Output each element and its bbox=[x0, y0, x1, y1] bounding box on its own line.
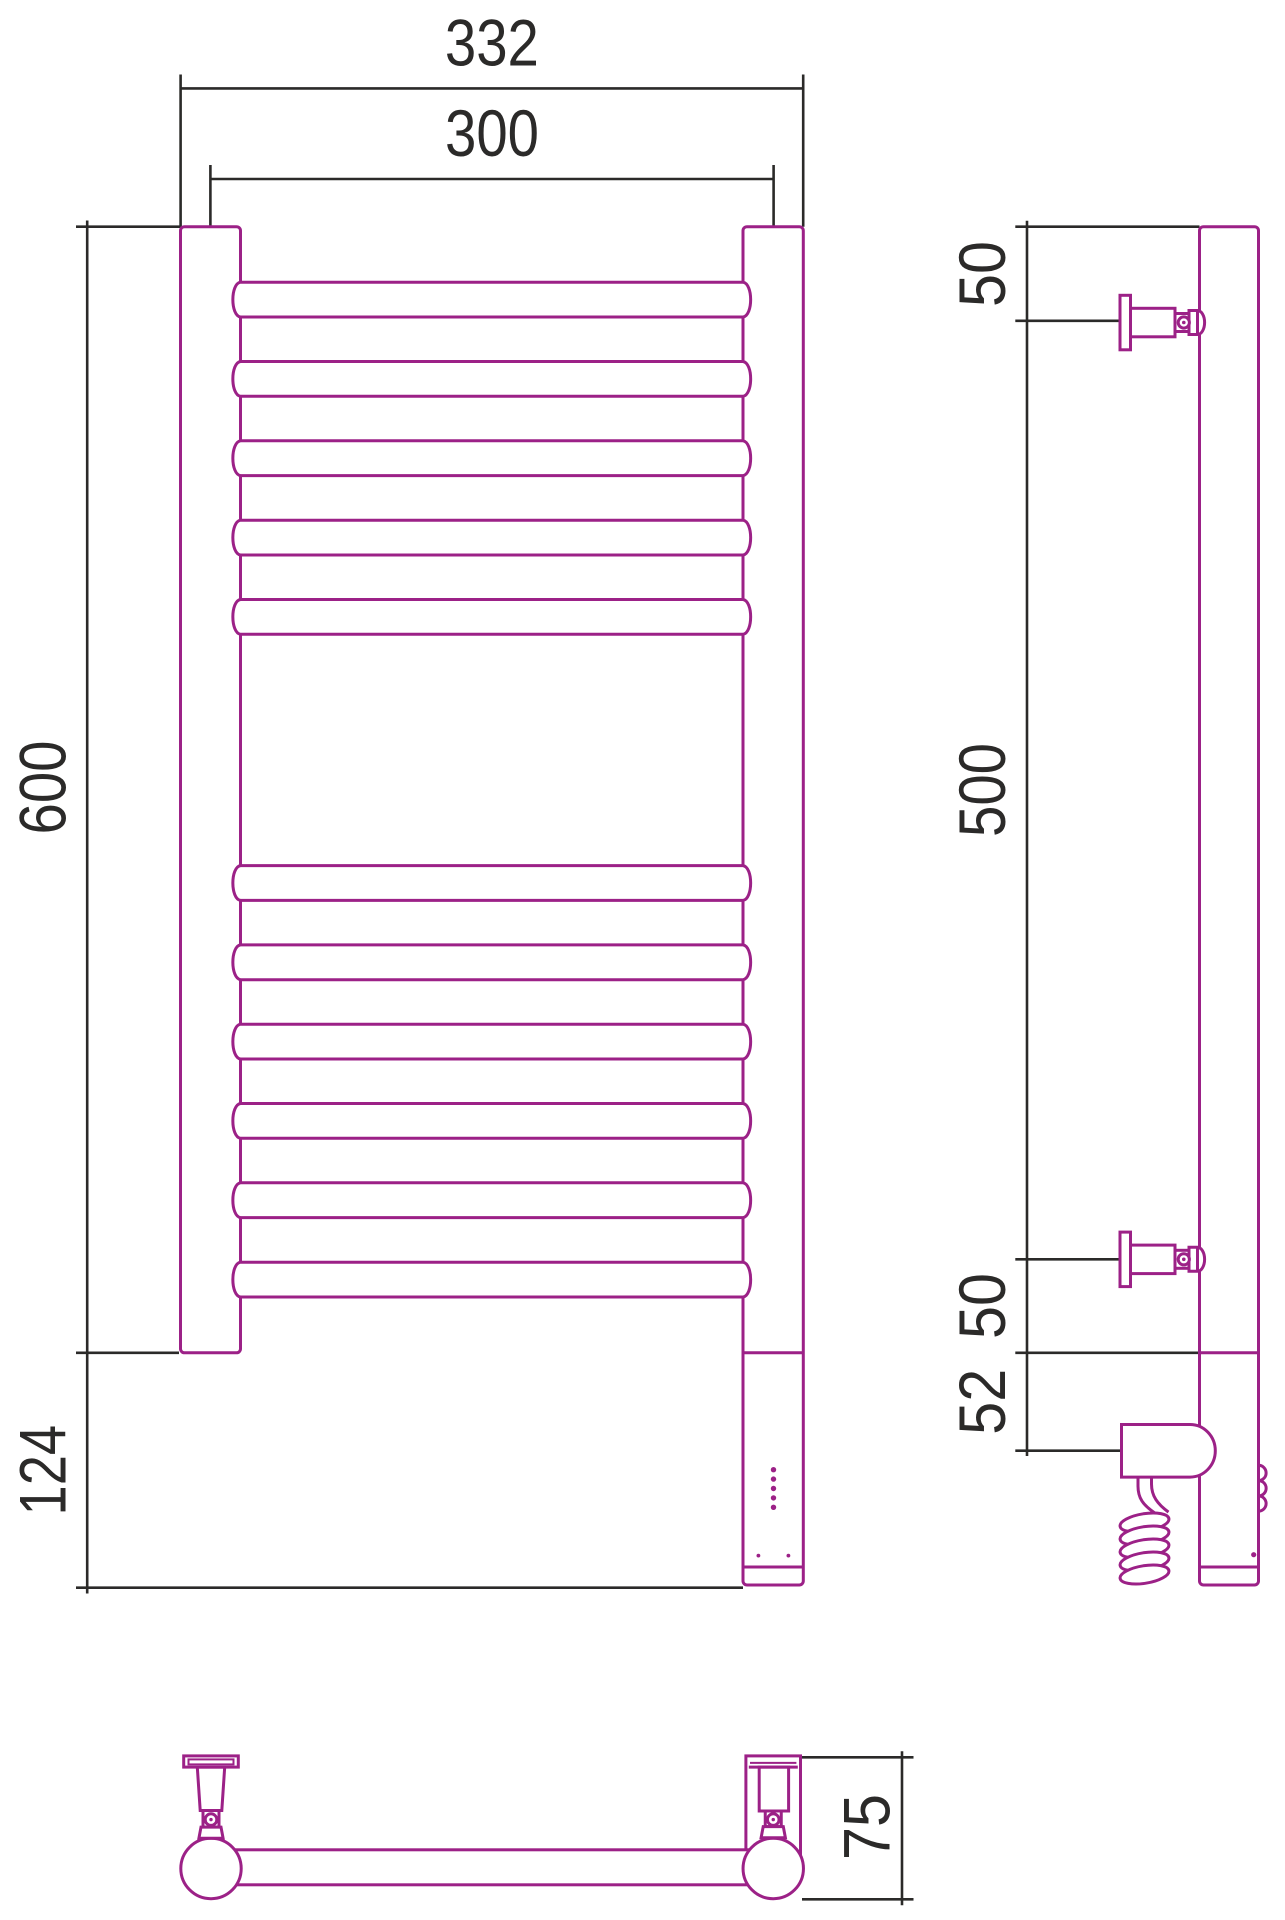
svg-text:50: 50 bbox=[945, 241, 1019, 307]
svg-text:600: 600 bbox=[5, 741, 79, 835]
svg-text:75: 75 bbox=[830, 1794, 904, 1860]
svg-text:300: 300 bbox=[445, 96, 539, 170]
svg-text:332: 332 bbox=[445, 6, 539, 80]
svg-text:124: 124 bbox=[5, 1425, 79, 1516]
svg-text:50: 50 bbox=[945, 1273, 1019, 1339]
svg-text:52: 52 bbox=[945, 1369, 1019, 1435]
svg-text:500: 500 bbox=[945, 743, 1019, 837]
